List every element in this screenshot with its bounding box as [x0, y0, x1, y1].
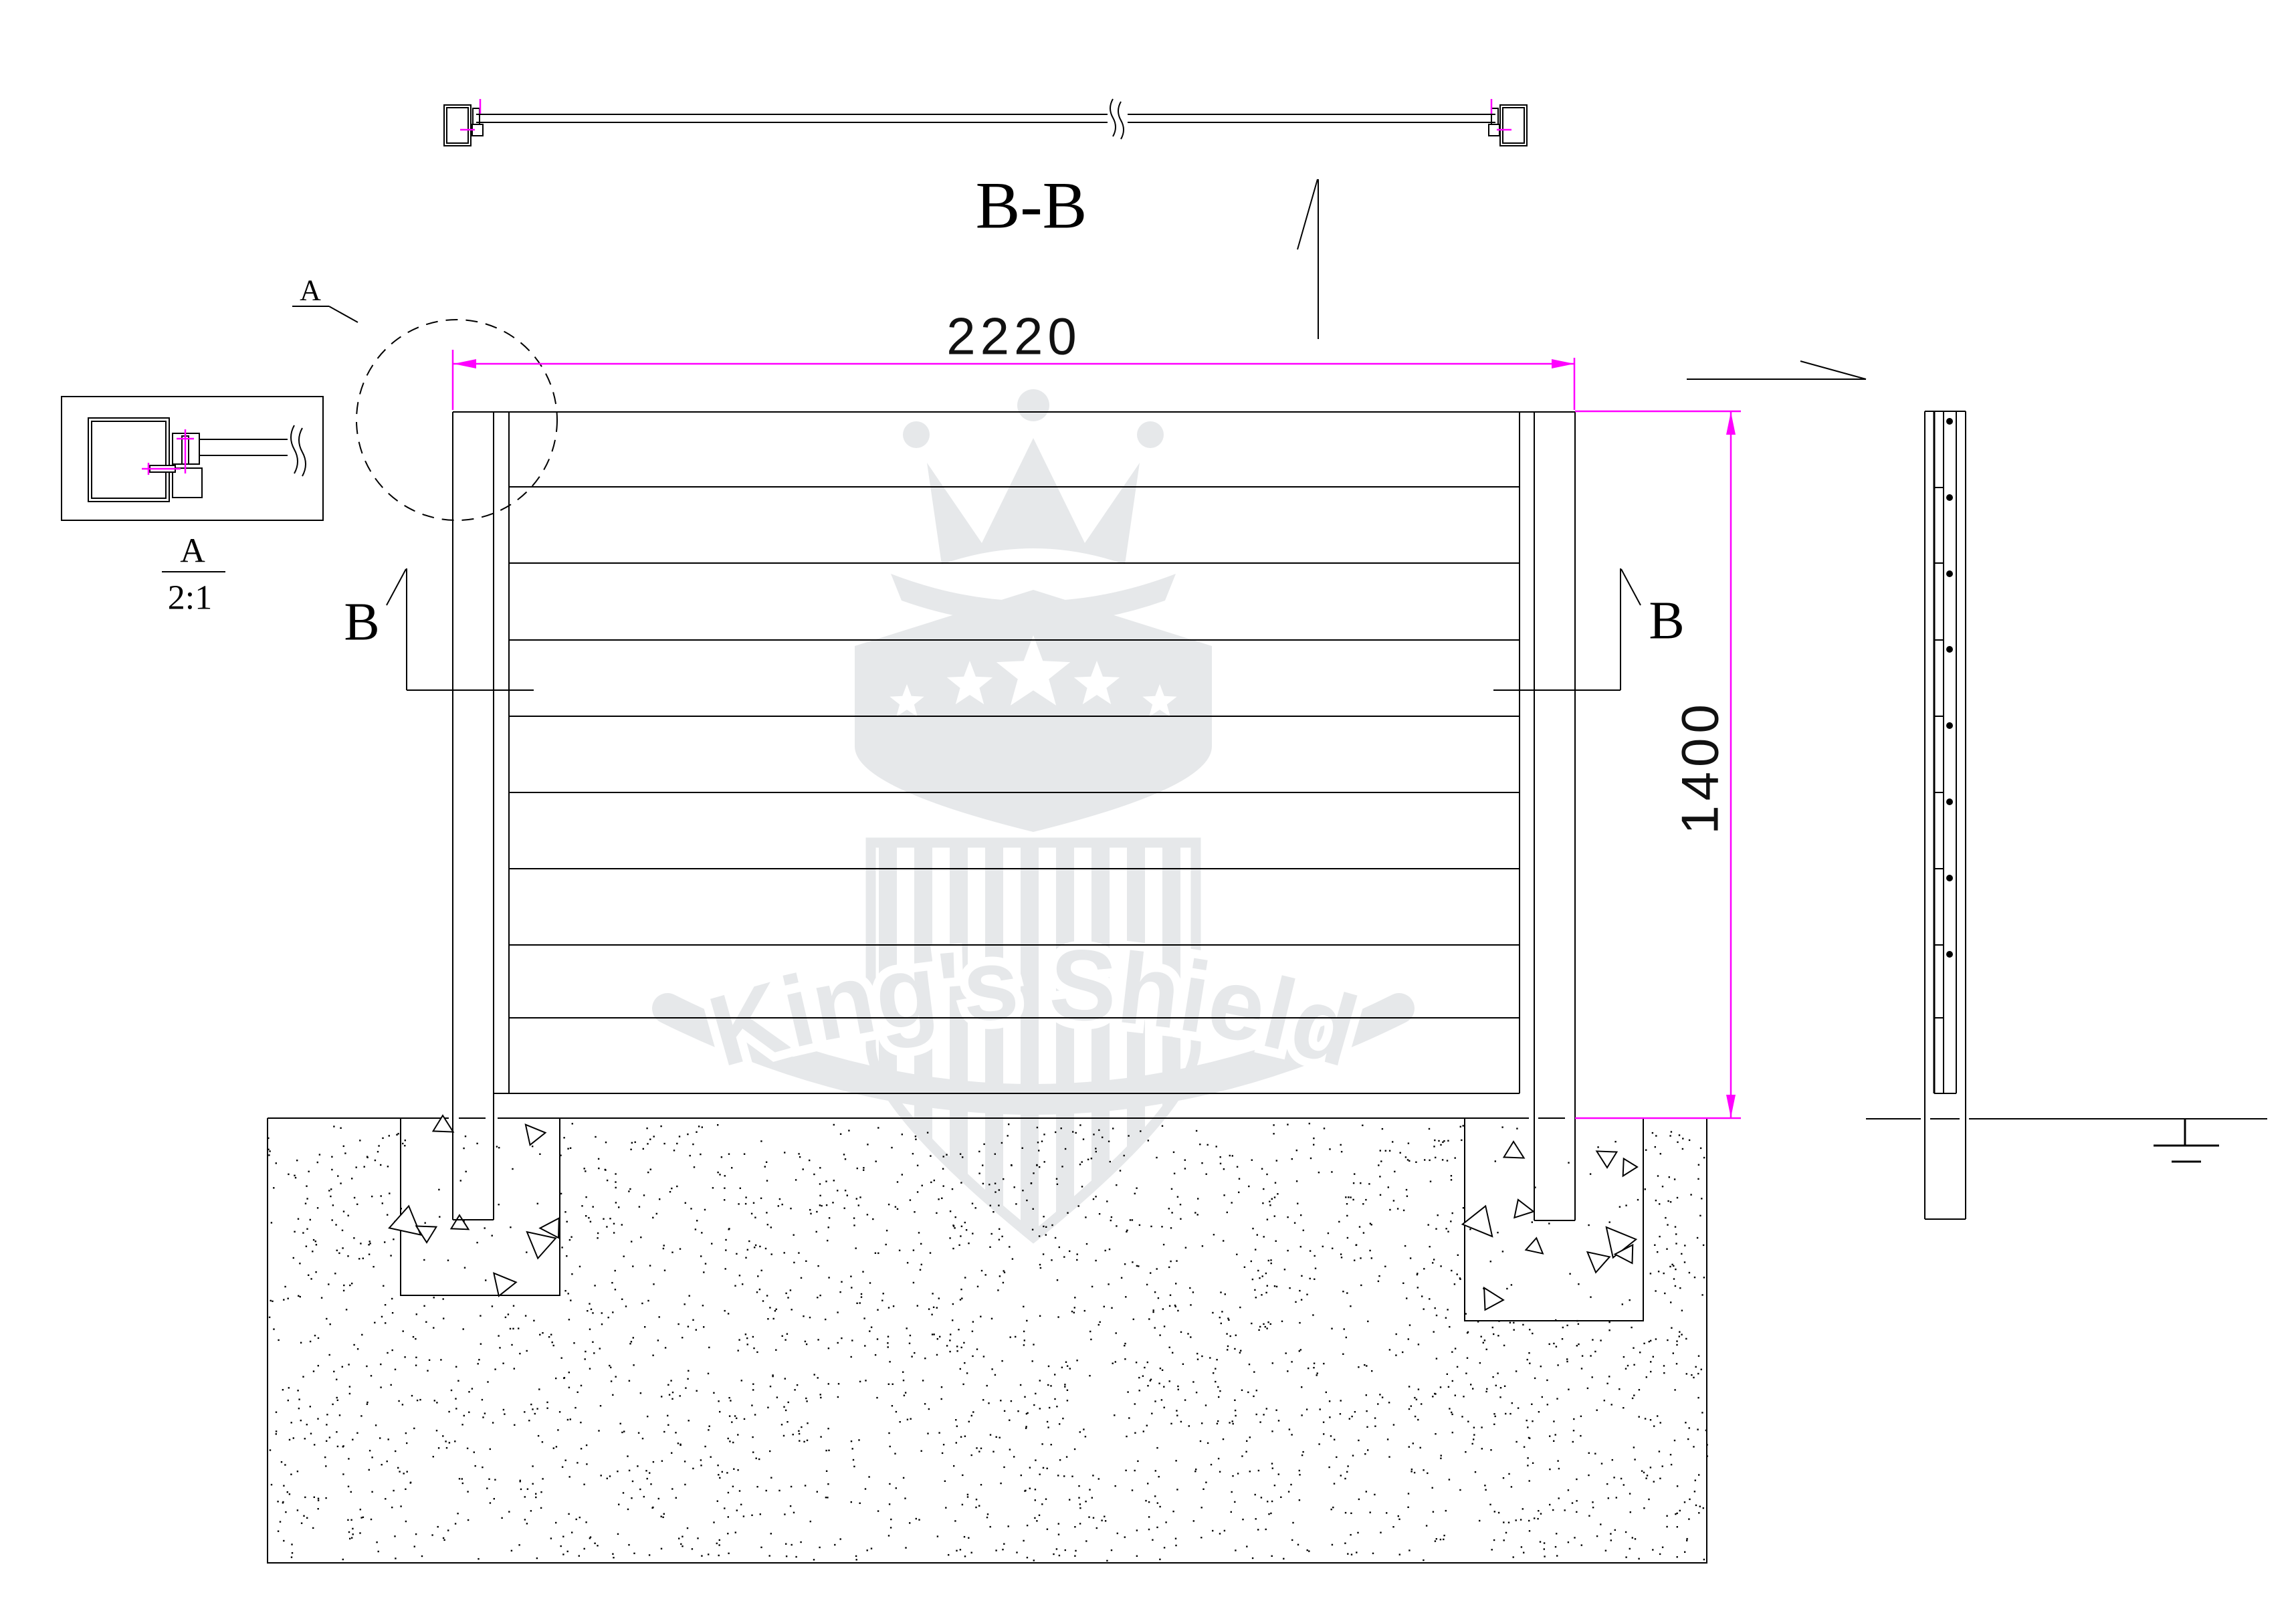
detail-a-callout [292, 306, 557, 520]
drawing-sheet: King's Shield [0, 0, 2296, 1609]
earth-ground-symbol [2154, 1119, 2219, 1162]
watermark-logo: King's Shield [667, 389, 1399, 1244]
side-view-slat-ticks [1934, 488, 1944, 1018]
bb-left-post [444, 105, 471, 146]
drawing-canvas: King's Shield [0, 0, 2296, 1609]
side-view-screw-dots [1946, 418, 1953, 958]
view-arrow-right [1687, 361, 1866, 379]
anchor-pocket-left [401, 1118, 560, 1295]
detail-scale-text: 2:1 [168, 578, 212, 618]
left-post [453, 412, 494, 1220]
section-mark-b-right [1493, 568, 1641, 690]
detail-title-letter: A [180, 532, 205, 571]
anchor-pocket-right [1465, 1118, 1643, 1321]
bb-section-view [444, 99, 1527, 146]
detail-circle [356, 320, 557, 520]
view-arrow-up [1297, 179, 1318, 339]
right-post [1534, 412, 1575, 1220]
bb-right-post [1500, 105, 1527, 146]
section-view-title: B-B [976, 167, 1087, 244]
dimension-height-value: 1400 [1670, 700, 1731, 835]
side-view [1866, 411, 2267, 1219]
section-letter-b-left: B [344, 593, 379, 653]
dimension-width-value: 2220 [946, 306, 1081, 367]
detail-callout-letter: A [300, 274, 321, 308]
section-mark-b-left [387, 568, 534, 690]
section-letter-b-right: B [1649, 591, 1684, 652]
